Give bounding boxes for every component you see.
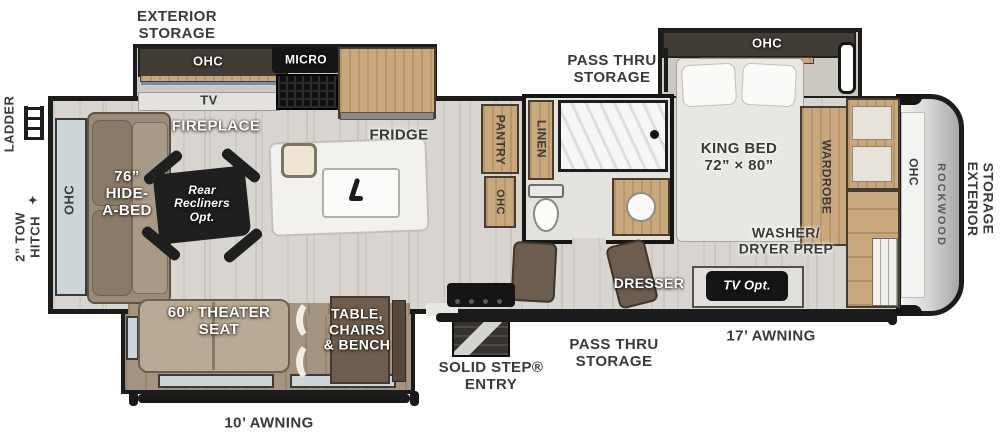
washer-dryer-label: WASHER/ DRYER PREP [739, 225, 834, 256]
cabinet-glass-pane [852, 106, 892, 140]
dinette-chair [296, 342, 326, 382]
exterior-storage-front-label: EXTERIOR STORAGE [964, 162, 995, 237]
sofa-back-cushion-bottom [92, 210, 132, 296]
awning-17-bar [436, 313, 894, 322]
awning-10-end-cap [129, 391, 138, 406]
floorplan-canvas: LADDER 2” TOW HITCH ✦ EXTERIOR STORAGE O… [0, 0, 1000, 444]
pillow [681, 63, 737, 108]
micro-label: MICRO [285, 53, 327, 66]
led-accent-strip [141, 82, 287, 85]
awning-17-end-cap [888, 310, 897, 325]
vanity-sink [626, 192, 656, 222]
linen-label: LINEN [534, 120, 547, 158]
ladder-icon [24, 106, 44, 140]
slide-window-strip [158, 374, 274, 388]
bedroom-steps [872, 238, 898, 306]
range-cooktop [276, 74, 338, 110]
fridge-cabinet-ledge [340, 112, 434, 120]
awning-10-label: 10’ AWNING [224, 416, 313, 433]
pass-thru-bottom-label: PASS THRU STORAGE [569, 337, 658, 371]
exterior-storage-top-label: EXTERIOR STORAGE [137, 9, 217, 43]
griddle-knob [497, 299, 502, 304]
bedroom-window [838, 42, 856, 94]
shower-head-icon [650, 130, 659, 139]
cabinet-glass-pane [852, 146, 892, 182]
dresser-label: DRESSER [614, 276, 684, 292]
griddle-knob [469, 299, 474, 304]
griddle-knob [483, 299, 488, 304]
griddle [447, 283, 515, 307]
griddle-knob [455, 299, 460, 304]
solid-step-entry-label: SOLID STEP® ENTRY [439, 360, 544, 394]
awning-10-bar [138, 394, 410, 403]
fridge-cabinet [338, 47, 436, 119]
hide-a-bed-label: 76” HIDE- A-BED [102, 169, 152, 219]
tv-opt-label: TV Opt. [723, 279, 771, 294]
accent-chair [510, 241, 557, 303]
island-stool [281, 143, 317, 178]
bath-ohc-label: OHC [494, 189, 506, 215]
dinette-chair [296, 300, 326, 340]
wardrobe-label: WARDROBE [819, 140, 832, 215]
ladder-label: LADDER [3, 96, 18, 153]
rockwood-brand-label: ROCKWOOD [935, 163, 947, 247]
front-ohc-label: OHC [906, 158, 919, 186]
rear-ohc-label: OHC [63, 185, 78, 215]
bedroom-ohc-label: OHC [752, 37, 782, 52]
bath-door-opening [572, 238, 606, 246]
pillow [741, 63, 797, 108]
tow-hitch-label: 2” TOW HITCH [13, 212, 42, 262]
recliners-opt-label: Rear Recliners Opt. [174, 184, 230, 224]
dinette-label: TABLE, CHAIRS & BENCH [324, 306, 391, 353]
sink-faucet-icon [349, 196, 363, 201]
pass-thru-top-label: PASS THRU STORAGE [567, 53, 656, 87]
fireplace-label: FIREPLACE [172, 119, 261, 136]
front-cap-inner-wall [901, 112, 925, 298]
hitch-icon: ✦ [28, 194, 38, 207]
pantry-label: PANTRY [493, 115, 506, 165]
island-sink [322, 168, 400, 218]
awning-10-end-cap [410, 391, 419, 406]
theater-seat-label: 60” THEATER SEAT [168, 305, 270, 339]
awning-17-label: 17’ AWNING [726, 329, 815, 346]
tv-label: TV [200, 94, 217, 109]
fridge-label: FRIDGE [369, 128, 428, 145]
kitchen-ohc-label: OHC [193, 55, 223, 70]
dinette-bench [392, 300, 406, 382]
king-bed-label: KING BED 72” × 80” [701, 141, 778, 175]
pass-thru-bracket [664, 48, 668, 92]
kitchen-ohc-shelf [140, 75, 288, 82]
toilet-tank [528, 184, 564, 198]
